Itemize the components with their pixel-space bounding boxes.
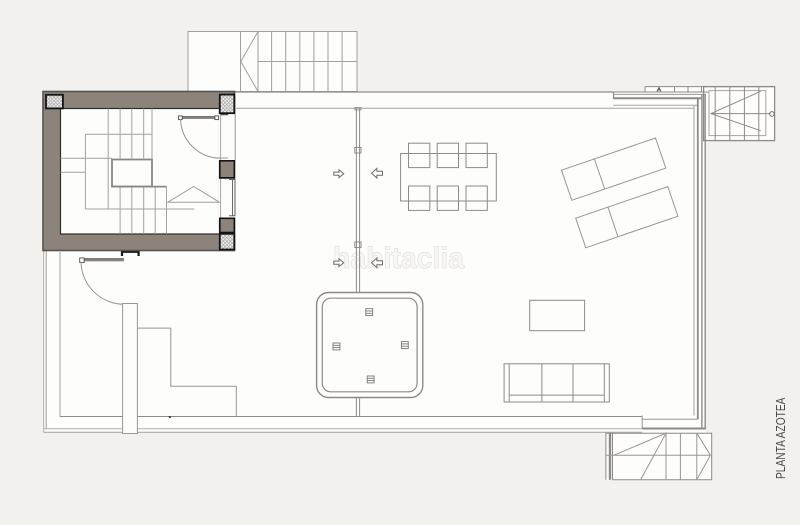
svg-text:habitaclia: habitaclia — [333, 242, 464, 275]
svg-text:PLANTA AZOTEA: PLANTA AZOTEA — [773, 397, 788, 479]
